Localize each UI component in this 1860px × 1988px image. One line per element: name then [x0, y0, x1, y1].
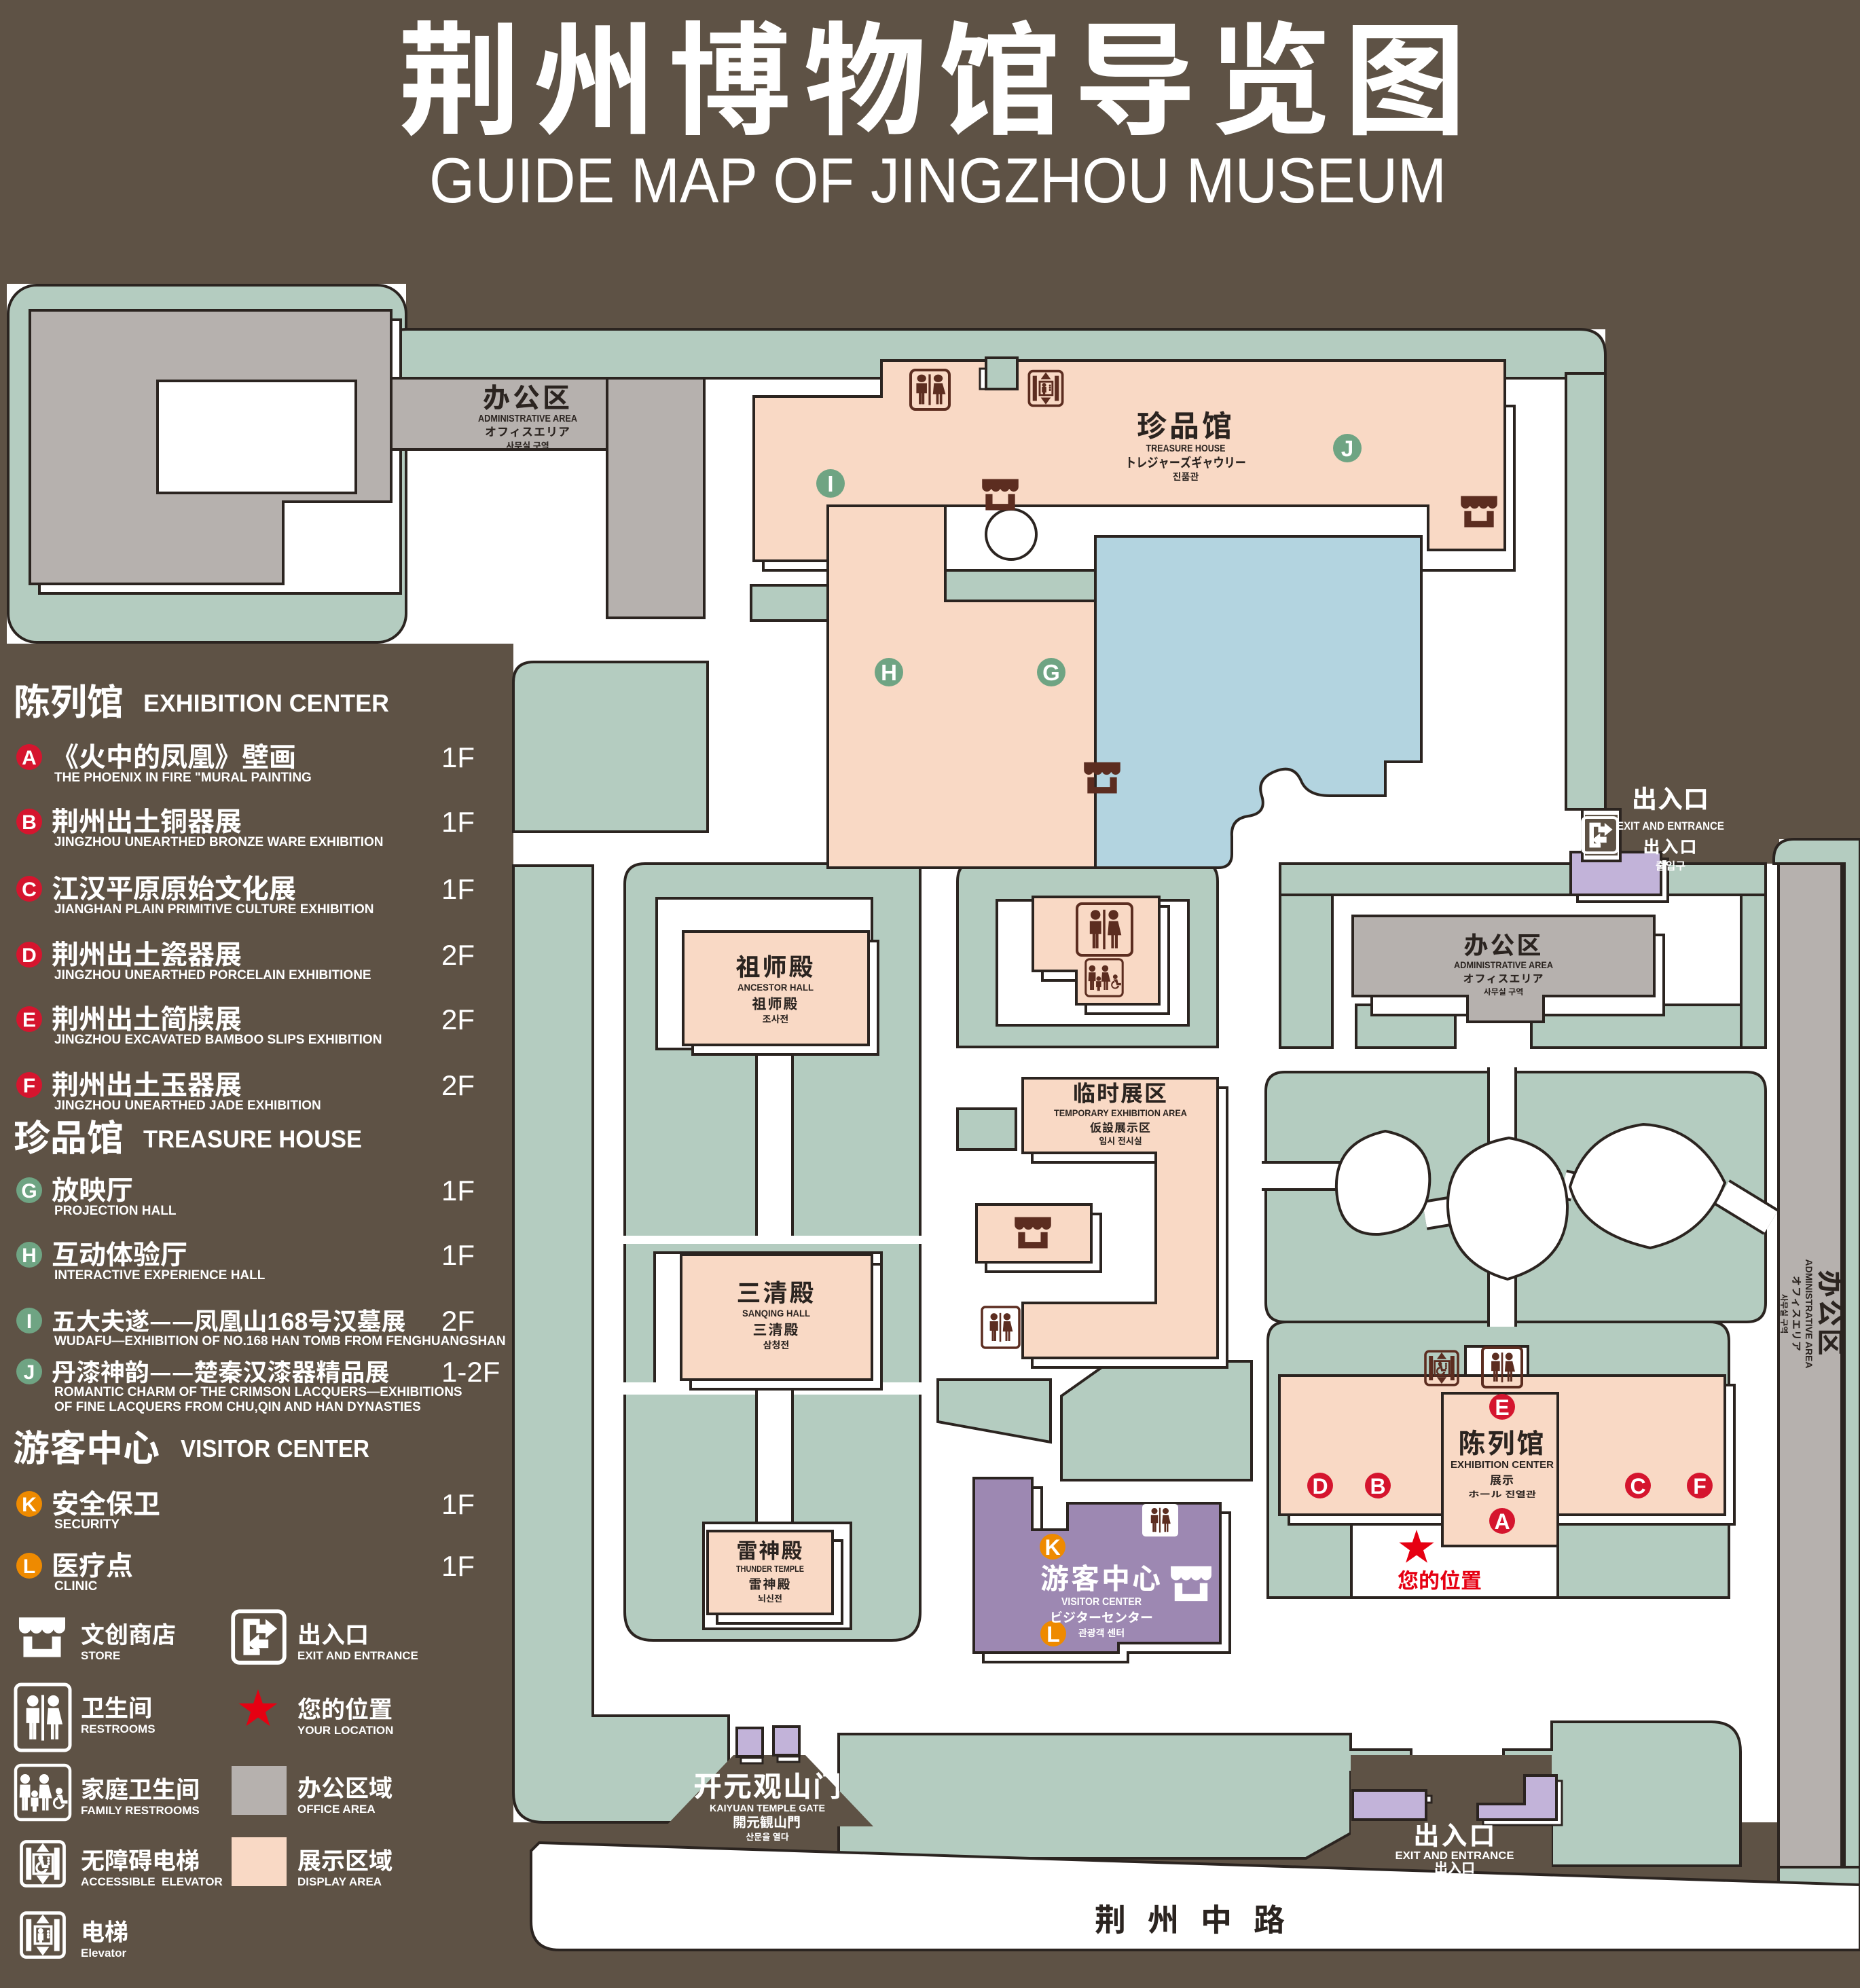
svg-text:珍品馆: 珍品馆: [14, 1108, 124, 1162]
svg-text:PROJECTION HALL: PROJECTION HALL: [54, 1204, 177, 1218]
svg-text:H: H: [22, 1245, 37, 1267]
svg-text:1F: 1F: [441, 1239, 475, 1271]
svg-text:RESTROOMS: RESTROOMS: [81, 1723, 156, 1735]
svg-text:뇌신전: 뇌신전: [758, 1591, 782, 1604]
svg-text:C: C: [22, 879, 37, 901]
svg-text:陈列馆: 陈列馆: [1459, 1422, 1546, 1461]
svg-text:TEMPORARY EXHIBITION AREA: TEMPORARY EXHIBITION AREA: [1054, 1107, 1187, 1118]
svg-text:出入口: 出入口: [1643, 834, 1698, 858]
svg-text:EXHIBITION CENTER: EXHIBITION CENTER: [1451, 1459, 1554, 1471]
svg-text:JINGZHOU UNEARTHED BRONZE WARE: JINGZHOU UNEARTHED BRONZE WARE EXHIBITIO…: [54, 835, 384, 849]
svg-text:陈列馆: 陈列馆: [14, 672, 124, 726]
svg-text:VISITOR CENTER: VISITOR CENTER: [181, 1435, 369, 1462]
svg-text:展示: 展示: [1490, 1471, 1514, 1488]
svg-text:办公区: 办公区: [483, 376, 572, 416]
svg-text:临时展区: 临时展区: [1073, 1075, 1168, 1108]
svg-text:GUIDE MAP OF JINGZHOU MUSEUM: GUIDE MAP OF JINGZHOU MUSEUM: [429, 145, 1446, 216]
svg-text:荆州出土简牍展: 荆州出土简牍展: [52, 997, 242, 1037]
svg-text:출입구: 출입구: [1656, 857, 1685, 873]
svg-text:安全保卫: 安全保卫: [52, 1482, 160, 1522]
svg-text:雷神殿: 雷神殿: [737, 1534, 804, 1564]
svg-text:您的位置: 您的位置: [297, 1691, 393, 1725]
svg-text:G: G: [1042, 660, 1060, 685]
svg-text:진품관: 진품관: [1173, 470, 1199, 483]
svg-text:DISPLAY AREA: DISPLAY AREA: [297, 1875, 382, 1888]
svg-text:オフィスエリア: オフィスエリア: [485, 422, 570, 439]
svg-text:K: K: [22, 1494, 37, 1516]
svg-text:사무실 구역: 사무실 구역: [1779, 1294, 1790, 1334]
svg-text:FAMILY RESTROOMS: FAMILY RESTROOMS: [81, 1804, 200, 1817]
svg-text:五大夫遂——凤凰山168号汉墓展: 五大夫遂——凤凰山168号汉墓展: [52, 1302, 405, 1338]
svg-text:CLINIC: CLINIC: [54, 1579, 98, 1594]
svg-text:WUDAFU—EXHIBITION OF NO.168 HA: WUDAFU—EXHIBITION OF NO.168 HAN TOMB FRO…: [54, 1334, 506, 1348]
svg-text:B: B: [22, 811, 37, 834]
svg-text:办公区域: 办公区域: [297, 1769, 393, 1804]
svg-text:Elevator: Elevator: [81, 1947, 126, 1959]
svg-text:祖师殿: 祖师殿: [735, 948, 815, 983]
svg-text:THE PHOENIX IN FIRE "MURAL PAI: THE PHOENIX IN FIRE "MURAL PAINTING: [54, 771, 312, 785]
svg-text:A: A: [22, 747, 37, 769]
svg-text:EXHIBITION CENTER: EXHIBITION CENTER: [143, 689, 389, 717]
svg-text:SANQING HALL: SANQING HALL: [742, 1308, 810, 1319]
svg-text:出入口: 出入口: [1413, 1815, 1497, 1852]
svg-text:江汉平原原始文化展: 江汉平原原始文化展: [52, 867, 296, 906]
svg-text:2F: 2F: [441, 1069, 475, 1101]
svg-text:三清殿: 三清殿: [753, 1319, 800, 1340]
svg-text:INTERACTIVE EXPERIENCE HALL: INTERACTIVE EXPERIENCE HALL: [54, 1268, 266, 1283]
svg-text:산문을 열다: 산문을 열다: [746, 1830, 788, 1843]
svg-text:ACCESSIBLE ELEVATOR: ACCESSIBLE ELEVATOR: [81, 1875, 223, 1888]
svg-text:J: J: [24, 1361, 35, 1384]
svg-text:2F: 2F: [441, 1004, 475, 1035]
svg-text:オフィスエリア: オフィスエリア: [1463, 970, 1544, 986]
svg-text:D: D: [1312, 1474, 1328, 1498]
svg-text:电梯: 电梯: [81, 1913, 128, 1948]
svg-text:OFFICE AREA: OFFICE AREA: [297, 1803, 376, 1816]
svg-text:荆州出土瓷器展: 荆州出土瓷器展: [52, 933, 242, 972]
svg-text:丹漆神韵——楚秦汉漆器精品展: 丹漆神韵——楚秦汉漆器精品展: [52, 1353, 389, 1388]
svg-text:雷神殿: 雷神殿: [748, 1575, 791, 1593]
svg-text:VISITOR CENTER: VISITOR CENTER: [1061, 1596, 1142, 1608]
svg-text:G: G: [21, 1180, 37, 1202]
svg-text:E: E: [1495, 1395, 1509, 1420]
svg-text:JINGZHOU EXCAVATED BAMBOO SLIP: JINGZHOU EXCAVATED BAMBOO SLIPS EXHIBITI…: [54, 1033, 382, 1047]
svg-text:I: I: [26, 1310, 32, 1333]
svg-text:OF FINE LACQUERS FROM CHU,QIN: OF FINE LACQUERS FROM CHU,QIN AND HAN DY…: [54, 1400, 421, 1414]
svg-text:2F: 2F: [441, 939, 475, 971]
svg-text:文创商店: 文创商店: [81, 1616, 176, 1651]
svg-text:1F: 1F: [441, 806, 475, 838]
svg-text:삼청전: 삼청전: [763, 1338, 790, 1352]
svg-text:TREASURE HOUSE: TREASURE HOUSE: [143, 1125, 362, 1153]
svg-text:无障碍电梯: 无障碍电梯: [81, 1842, 200, 1877]
svg-text:游客中心: 游客中心: [1040, 1556, 1163, 1598]
svg-text:游客中心: 游客中心: [13, 1418, 160, 1472]
svg-text:1F: 1F: [441, 741, 475, 773]
svg-text:開元観山門: 開元観山門: [733, 1811, 801, 1831]
svg-text:ADMINISTRATIVE AREA: ADMINISTRATIVE AREA: [1454, 959, 1553, 970]
svg-text:조사전: 조사전: [763, 1012, 789, 1026]
svg-text:A: A: [1494, 1509, 1510, 1534]
svg-text:J: J: [1341, 436, 1353, 461]
svg-text:D: D: [22, 944, 37, 967]
svg-text:사무실 구역: 사무실 구역: [506, 439, 549, 452]
svg-text:JINGZHOU UNEARTHED PORCELAIN E: JINGZHOU UNEARTHED PORCELAIN EXHIBITIONE: [54, 968, 371, 982]
svg-text:展示区域: 展示区域: [297, 1842, 393, 1877]
svg-text:放映厅: 放映厅: [52, 1168, 133, 1208]
svg-text:E: E: [22, 1009, 36, 1031]
svg-text:STORE: STORE: [81, 1649, 120, 1662]
svg-text:办公区: 办公区: [1812, 1270, 1852, 1358]
svg-text:1F: 1F: [441, 1175, 475, 1207]
svg-text:F: F: [1693, 1474, 1707, 1498]
svg-text:您的位置: 您的位置: [1398, 1564, 1482, 1594]
svg-text:1F: 1F: [441, 1488, 475, 1520]
svg-text:사무실 구역: 사무실 구역: [1484, 986, 1524, 997]
svg-text:卫生间: 卫生间: [81, 1689, 152, 1724]
svg-text:F: F: [23, 1075, 35, 1097]
svg-text:三清殿: 三清殿: [736, 1274, 816, 1309]
svg-text:《火中的凤凰》壁画: 《火中的凤凰》壁画: [52, 735, 296, 775]
svg-text:ADMINISTRATIVE AREA: ADMINISTRATIVE AREA: [1804, 1259, 1815, 1369]
svg-text:ホール 진열관: ホール 진열관: [1468, 1488, 1536, 1500]
svg-text:珍品馆: 珍品馆: [1137, 402, 1235, 445]
svg-text:家庭卫生间: 家庭卫生间: [81, 1771, 200, 1805]
svg-text:관광객 센터: 관광객 센터: [1078, 1626, 1125, 1640]
svg-text:祖师殿: 祖师殿: [752, 993, 799, 1014]
svg-text:出入口: 出入口: [297, 1616, 369, 1651]
svg-text:医疗点: 医疗点: [52, 1544, 133, 1583]
svg-text:オフィスエリア: オフィスエリア: [1789, 1276, 1804, 1352]
svg-text:JIANGHAN PLAIN PRIMITIVE CULTU: JIANGHAN PLAIN PRIMITIVE CULTURE EXHIBIT…: [54, 902, 373, 917]
svg-text:C: C: [1630, 1474, 1645, 1498]
svg-text:荆州中路: 荆州中路: [1095, 1896, 1307, 1940]
svg-text:ANCESTOR HALL: ANCESTOR HALL: [737, 982, 814, 993]
svg-text:出入口: 出入口: [1632, 779, 1709, 815]
svg-text:1F: 1F: [441, 873, 475, 905]
svg-text:荆州出土铜器展: 荆州出土铜器展: [52, 800, 242, 839]
svg-text:YOUR LOCATION: YOUR LOCATION: [297, 1724, 393, 1737]
svg-text:임시 전시실: 임시 전시실: [1099, 1134, 1142, 1147]
svg-text:I: I: [827, 471, 833, 496]
svg-text:ビジターセンター: ビジターセンター: [1050, 1608, 1153, 1626]
svg-text:仮設展示区: 仮設展示区: [1090, 1118, 1151, 1135]
svg-text:1F: 1F: [441, 1550, 475, 1582]
svg-text:EXIT AND ENTRANCE: EXIT AND ENTRANCE: [297, 1649, 418, 1662]
svg-text:EXIT AND ENTRANCE: EXIT AND ENTRANCE: [1617, 820, 1724, 832]
svg-text:B: B: [1370, 1474, 1385, 1498]
svg-text:互动体验厅: 互动体验厅: [52, 1233, 187, 1272]
svg-text:출입구: 출입구: [1442, 1873, 1466, 1885]
svg-text:SECURITY: SECURITY: [54, 1517, 120, 1532]
svg-text:トレジャーズギャウリー: トレジャーズギャウリー: [1125, 453, 1246, 471]
svg-text:办公区: 办公区: [1463, 926, 1543, 961]
svg-text:开元观山门: 开元观山门: [693, 1764, 843, 1805]
svg-text:L: L: [23, 1556, 35, 1578]
svg-text:H: H: [881, 660, 897, 685]
svg-text:2F: 2F: [441, 1305, 475, 1337]
svg-text:THUNDER TEMPLE: THUNDER TEMPLE: [736, 1564, 804, 1574]
svg-text:ROMANTIC CHARM OF THE CRIMSON: ROMANTIC CHARM OF THE CRIMSON LACQUERS—E…: [54, 1385, 462, 1399]
svg-text:荆州出土玉器展: 荆州出土玉器展: [52, 1063, 242, 1103]
svg-text:1-2F: 1-2F: [441, 1356, 500, 1388]
